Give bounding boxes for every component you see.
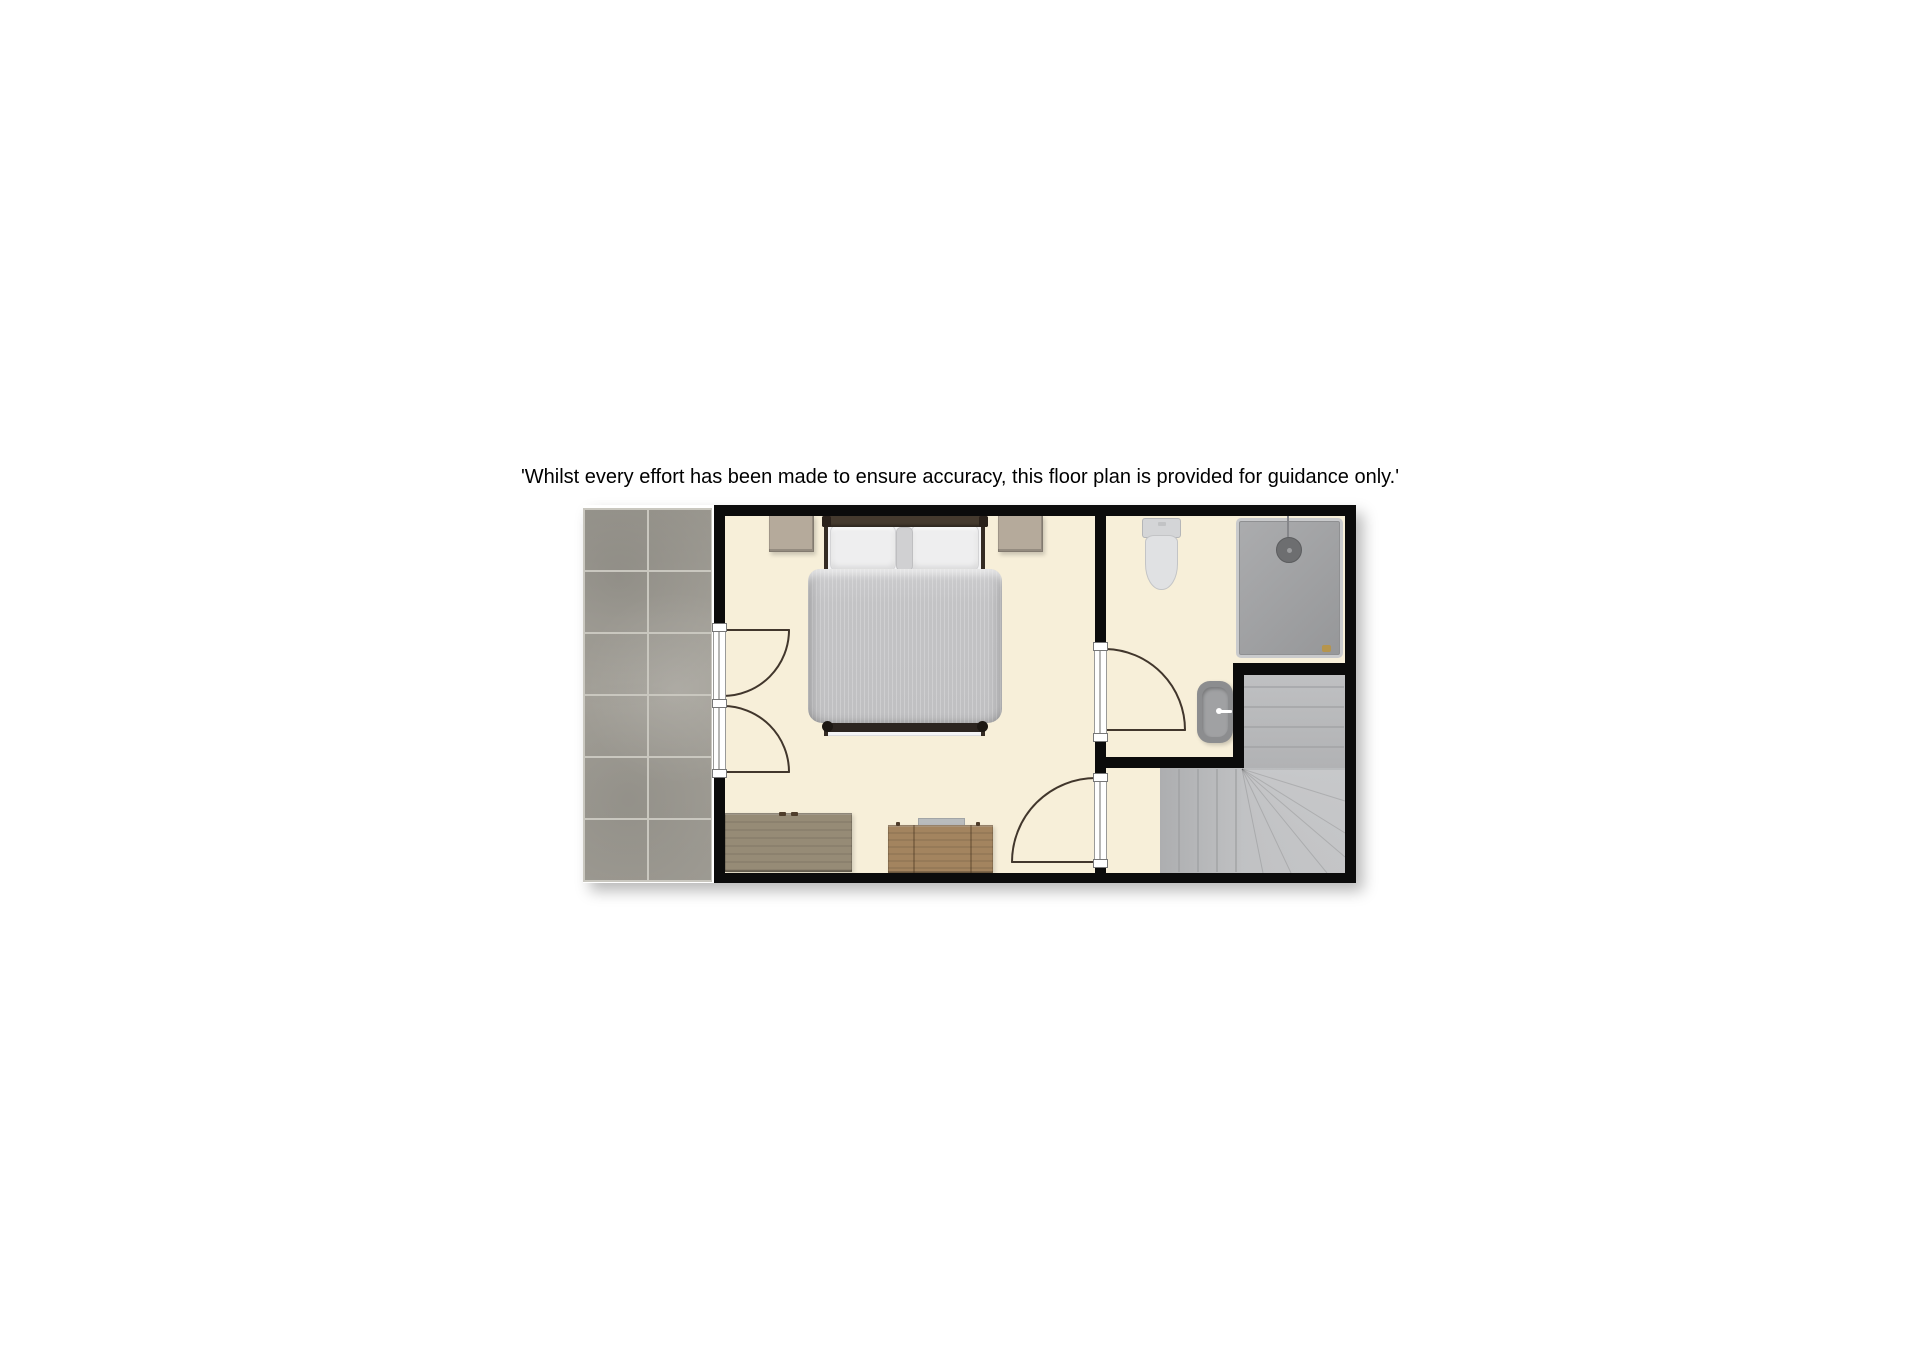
nightstand-right <box>998 515 1043 552</box>
wall-stairs-left <box>1233 663 1244 768</box>
page: 'Whilst every effort has been made to en… <box>0 0 1920 1358</box>
door-glazing-line <box>1099 773 1101 868</box>
door-hinge-bottom <box>1093 733 1108 742</box>
drawer-seam <box>970 825 972 873</box>
bed-post-left <box>822 721 833 732</box>
door-hinge-top <box>1093 773 1108 782</box>
stairs-upper-flight <box>1244 675 1345 768</box>
headboard-post-right <box>979 516 988 527</box>
door-glazing-line <box>1099 642 1101 742</box>
drawer-knob <box>976 822 980 826</box>
wall-bottom <box>714 873 1356 883</box>
bathroom-door-frame <box>1094 642 1107 742</box>
bed-footboard <box>825 723 985 732</box>
door-hinge-top <box>1093 642 1108 651</box>
bed-post-right <box>977 721 988 732</box>
wall-left-lower <box>714 778 725 883</box>
toilet-flush-button <box>1158 522 1166 526</box>
headboard-post-left <box>822 516 831 527</box>
wall-left-upper <box>714 505 725 623</box>
bed-duvet <box>808 569 1002 723</box>
pillow-center-cushion <box>896 527 913 571</box>
nightstand-left <box>769 515 814 552</box>
wall-bathroom-bottom <box>1095 757 1244 768</box>
wall-divider-upper <box>1095 505 1106 642</box>
wall-under-shower <box>1233 663 1345 675</box>
terrace-tiles <box>583 508 712 882</box>
stairs-lower-flight <box>1160 768 1241 873</box>
pillow-left <box>830 524 896 572</box>
door-meeting-stile <box>712 699 727 708</box>
shower-head-icon <box>1276 537 1302 563</box>
drawer-knob <box>896 822 900 826</box>
door-hinge-bottom <box>712 769 727 778</box>
drawer-seam <box>913 825 915 873</box>
door-hinge-bottom <box>1093 859 1108 868</box>
french-door-frame <box>713 623 726 778</box>
drawer-knob <box>791 812 798 816</box>
shower-drain <box>1322 645 1331 652</box>
stairs-winder <box>1241 768 1345 873</box>
chest-of-drawers-large <box>725 813 852 872</box>
wall-divider-lower <box>1095 868 1106 883</box>
landing-door-frame <box>1094 773 1107 868</box>
door-hinge-top <box>712 623 727 632</box>
toilet-bowl <box>1145 535 1178 590</box>
floor-plan <box>583 505 1356 883</box>
chest-of-drawers-small <box>888 825 993 873</box>
bed-headboard <box>822 516 988 527</box>
drawer-knob <box>779 812 786 816</box>
disclaimer-text: 'Whilst every effort has been made to en… <box>0 466 1920 489</box>
basin-faucet-handle <box>1216 708 1222 714</box>
wall-top <box>714 505 1356 516</box>
wall-right <box>1345 505 1356 883</box>
pillow-right <box>911 524 979 572</box>
shower-head-center <box>1287 548 1292 553</box>
